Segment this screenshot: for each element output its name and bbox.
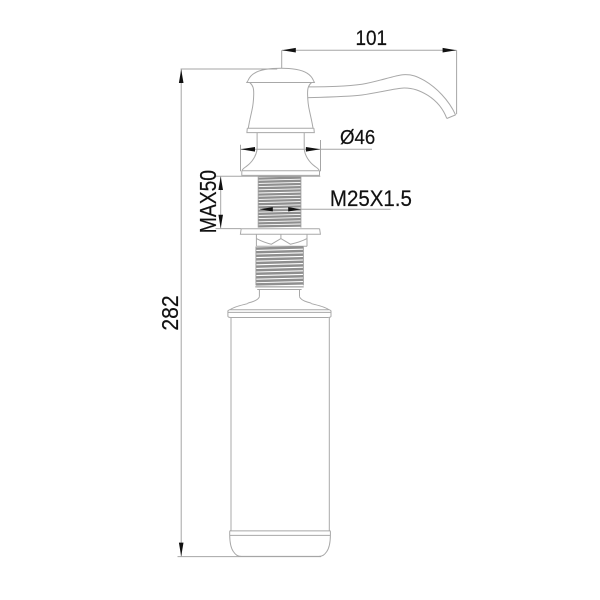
svg-text:101: 101 [356, 27, 388, 50]
svg-text:MAX50: MAX50 [197, 170, 222, 233]
svg-text:M25X1.5: M25X1.5 [330, 187, 412, 211]
svg-text:Ø46: Ø46 [340, 126, 375, 149]
svg-text:282: 282 [157, 295, 183, 330]
